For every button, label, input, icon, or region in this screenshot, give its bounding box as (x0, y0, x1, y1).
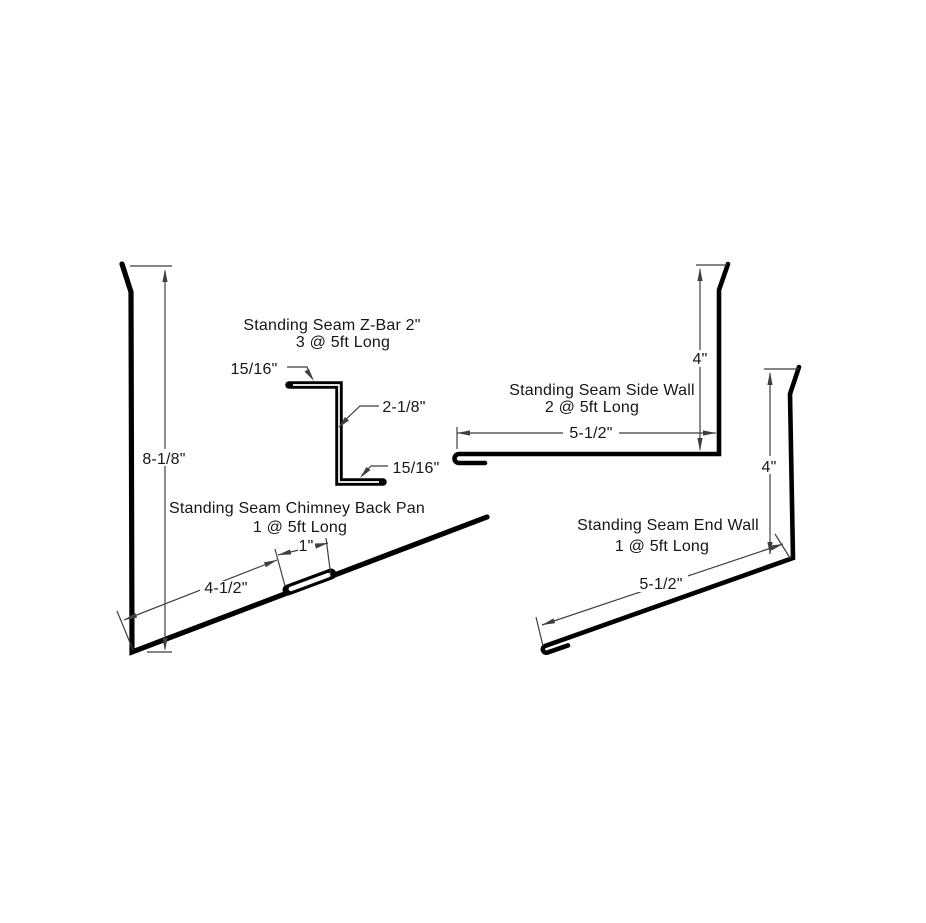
side-wall-dimensions: 5-1/2" 4" (457, 265, 727, 451)
arrowhead-up (767, 372, 772, 385)
dimension-label-top-hem: 15/16" (231, 361, 278, 378)
arrowhead-right (703, 430, 716, 435)
dimension-label-rise: 4" (693, 351, 708, 368)
z-bar-dimensions: 15/16" 2-1/8" 15/16" (231, 361, 440, 478)
arrowhead-up (162, 269, 167, 282)
arrowhead-left (542, 618, 555, 625)
dimension-label-hem: 1" (299, 538, 314, 555)
chimney-back-pan-quantity: 1 @ 5ft Long (253, 519, 347, 536)
arrowhead-left (457, 430, 470, 435)
dimension-label-base: 5-1/2" (569, 425, 612, 442)
side-wall-title: Standing Seam Side Wall (509, 382, 694, 399)
arrowhead-right (315, 543, 328, 549)
end-wall-title: Standing Seam End Wall (577, 517, 759, 534)
dimension-label-base: 5-1/2" (639, 576, 682, 593)
end-wall-quantity: 1 @ 5ft Long (615, 538, 709, 555)
profile-titles: Standing Seam Z-Bar 2" 3 @ 5ft Long Stan… (169, 317, 759, 555)
flashing-profiles-drawing: 8-1/8" 4-1/2" 1" 15/16" 2-1/8" 15/16" 5-… (0, 0, 926, 923)
dimension-label-rise: 4" (762, 459, 777, 476)
arrowhead-down-right (305, 369, 315, 381)
dimension-label-height: 8-1/8" (142, 451, 185, 468)
drawing-page: 8-1/8" 4-1/2" 1" 15/16" 2-1/8" 15/16" 5-… (0, 0, 926, 923)
z-bar-title: Standing Seam Z-Bar 2" (243, 317, 420, 334)
chimney-back-pan-title: Standing Seam Chimney Back Pan (169, 500, 425, 517)
arrowhead-up (697, 268, 702, 281)
side-wall-quantity: 2 @ 5ft Long (545, 399, 639, 416)
arrowhead-down (162, 638, 167, 651)
arrowhead-down (697, 438, 702, 451)
arrowhead-right (264, 560, 277, 567)
dimension-label-bottom-hem: 15/16" (393, 460, 440, 477)
extension-line (536, 617, 543, 646)
arrowhead-left (278, 549, 291, 555)
z-bar-quantity: 3 @ 5ft Long (296, 334, 390, 351)
dimension-label-web: 2-1/8" (382, 399, 425, 416)
dimension-label-base: 4-1/2" (204, 580, 247, 597)
